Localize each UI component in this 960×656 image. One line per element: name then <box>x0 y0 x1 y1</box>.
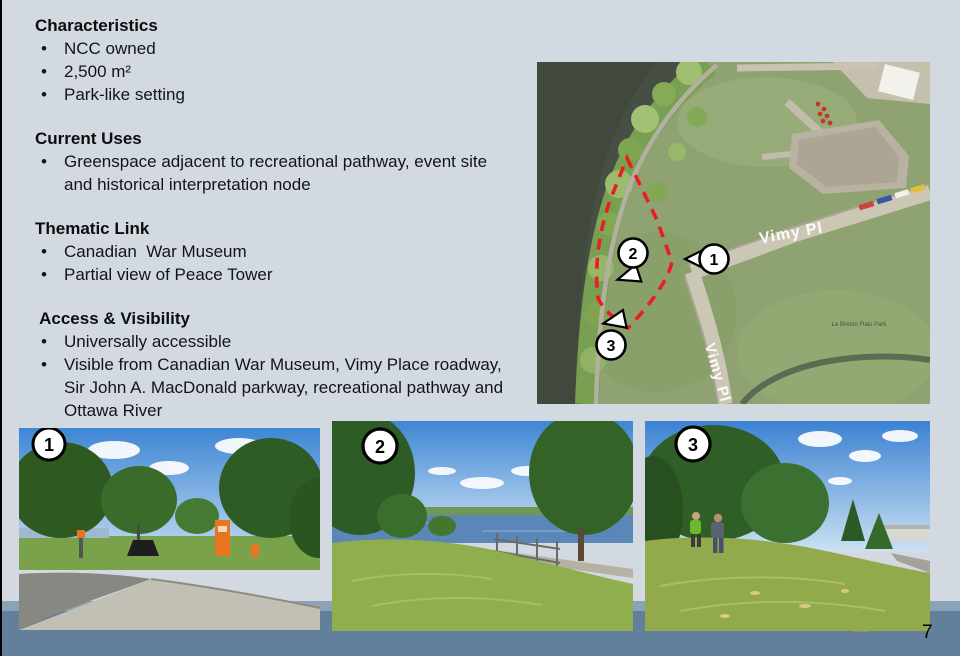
photo3-meadow <box>645 537 930 631</box>
photo1-grass <box>19 536 320 570</box>
site-description: Characteristics •NCC owned•2,500 m²•Park… <box>35 14 517 443</box>
aerial-site-map: Vimy Pl Vimy Pl Le Breton Flats Park 1 2… <box>537 62 930 404</box>
slide-page-number: 7 <box>922 622 933 644</box>
slide: { "content": { "sections": [ { "title": … <box>0 0 960 656</box>
photo-1-graphic: 1 <box>19 428 320 630</box>
bullet-list: •Universally accessible•Visible from Can… <box>35 330 517 422</box>
bullet-item: •NCC owned <box>35 37 517 60</box>
svg-text:2: 2 <box>375 437 385 457</box>
bullet-item: •Canadian War Museum <box>35 240 517 263</box>
photo2-meadow <box>332 539 633 631</box>
section-access-visibility: Access & Visibility •Universally accessi… <box>35 307 517 422</box>
bullet-list: •Greenspace adjacent to recreational pat… <box>35 150 517 196</box>
bullet-icon: • <box>35 330 64 353</box>
bullet-icon: • <box>35 37 64 60</box>
map-marker-1: 1 <box>700 245 729 274</box>
bullet-item: •Greenspace adjacent to recreational pat… <box>35 150 517 196</box>
bullet-list: •NCC owned•2,500 m²•Park-like setting <box>35 37 517 106</box>
bullet-item: •Park-like setting <box>35 83 517 106</box>
section-characteristics: Characteristics •NCC owned•2,500 m²•Park… <box>35 14 517 106</box>
svg-text:1: 1 <box>710 252 719 269</box>
section-title: Thematic Link <box>35 217 517 240</box>
bullet-icon: • <box>35 150 64 196</box>
map-marker-3: 3 <box>597 331 626 360</box>
photo3-badge: 3 <box>676 427 710 461</box>
photo-3-graphic: 3 <box>645 421 930 631</box>
photo2-badge: 2 <box>363 429 397 463</box>
section-current-uses: Current Uses •Greenspace adjacent to rec… <box>35 127 517 196</box>
site-photo-3: 3 <box>645 421 930 631</box>
aerial-map-graphic: Vimy Pl Vimy Pl Le Breton Flats Park 1 2… <box>537 62 930 404</box>
photo-2-graphic: 2 <box>332 421 633 631</box>
section-title: Access & Visibility <box>35 307 517 330</box>
bullet-list: •Canadian War Museum•Partial view of Pea… <box>35 240 517 286</box>
section-thematic-link: Thematic Link •Canadian War Museum•Parti… <box>35 217 517 286</box>
svg-text:3: 3 <box>688 435 698 455</box>
bullet-item: •2,500 m² <box>35 60 517 83</box>
bullet-icon: • <box>35 60 64 83</box>
bullet-icon: • <box>35 83 64 106</box>
bullet-item: •Universally accessible <box>35 330 517 353</box>
site-photo-2: 2 <box>332 421 633 631</box>
map-label-lebreton-flats-park: Le Breton Flats Park <box>832 322 888 328</box>
bullet-icon: • <box>35 353 64 422</box>
bullet-item: •Partial view of Peace Tower <box>35 263 517 286</box>
site-photo-1: 1 <box>19 428 320 630</box>
svg-text:2: 2 <box>629 246 638 263</box>
bullet-item: •Visible from Canadian War Museum, Vimy … <box>35 353 517 422</box>
section-title: Characteristics <box>35 14 517 37</box>
svg-text:1: 1 <box>44 435 54 455</box>
bullet-icon: • <box>35 240 64 263</box>
svg-text:3: 3 <box>607 338 616 355</box>
section-title: Current Uses <box>35 127 517 150</box>
photo1-badge: 1 <box>33 428 65 460</box>
bullet-icon: • <box>35 263 64 286</box>
map-marker-2: 2 <box>619 239 648 268</box>
